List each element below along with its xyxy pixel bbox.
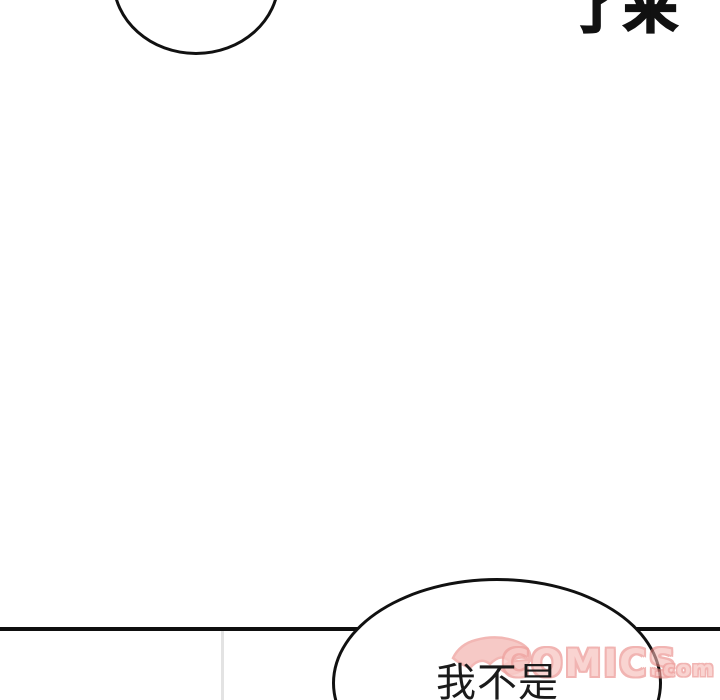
dialogue-text: 我不是 bbox=[436, 650, 559, 700]
panel-divider-line bbox=[221, 631, 224, 700]
speech-bubble-top-partial bbox=[112, 0, 280, 55]
cutoff-dialogue-text: 了来 bbox=[570, 0, 678, 43]
comic-page: 了来 COMICS .com 我不是 bbox=[0, 0, 720, 700]
watermark-suffix-text: .com bbox=[654, 657, 715, 681]
